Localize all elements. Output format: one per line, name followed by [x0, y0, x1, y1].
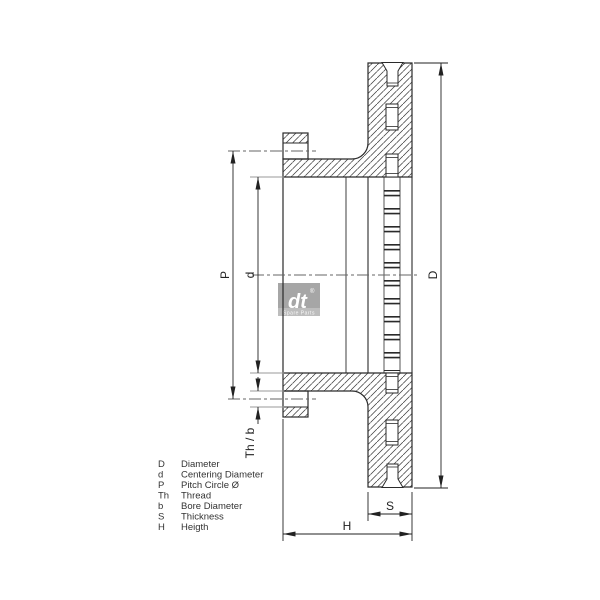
dim-label-d: d — [243, 272, 257, 279]
bolt-boss-bottom — [283, 391, 308, 417]
dt-logo: dt ® Spare Parts — [278, 283, 320, 316]
legend-key-b: b — [158, 501, 163, 512]
brake-disc-drawing: dt ® Spare Parts — [0, 0, 600, 600]
technical-drawing-page: dt ® Spare Parts — [0, 0, 600, 600]
dim-label-S: S — [386, 499, 394, 513]
legend-key-S: S — [158, 512, 164, 523]
bolt-boss-top — [283, 133, 308, 159]
legend: D Diameter d Centering Diameter P Pitch … — [158, 459, 263, 533]
dim-label-D: D — [426, 270, 440, 279]
dim-label-H: H — [343, 519, 352, 533]
dt-logo-caption: Spare Parts — [283, 310, 315, 316]
legend-key-D: D — [158, 459, 165, 470]
legend-label-S: Thickness — [181, 512, 224, 523]
legend-label-Th: Thread — [181, 491, 211, 502]
legend-label-P: Pitch Circle Ø — [181, 480, 240, 491]
legend-label-b: Bore Diameter — [181, 501, 242, 512]
dim-label-thb: Th / b — [243, 427, 257, 458]
legend-key-P: P — [158, 480, 164, 491]
legend-key-d: d — [158, 470, 163, 481]
dt-logo-registered-icon: ® — [310, 288, 315, 295]
legend-label-H: Heigth — [181, 522, 208, 533]
legend-label-D: Diameter — [181, 459, 220, 470]
dim-label-P: P — [218, 271, 232, 279]
legend-label-d: Centering Diameter — [181, 470, 263, 481]
legend-key-Th: Th — [158, 491, 169, 502]
legend-key-H: H — [158, 522, 165, 533]
